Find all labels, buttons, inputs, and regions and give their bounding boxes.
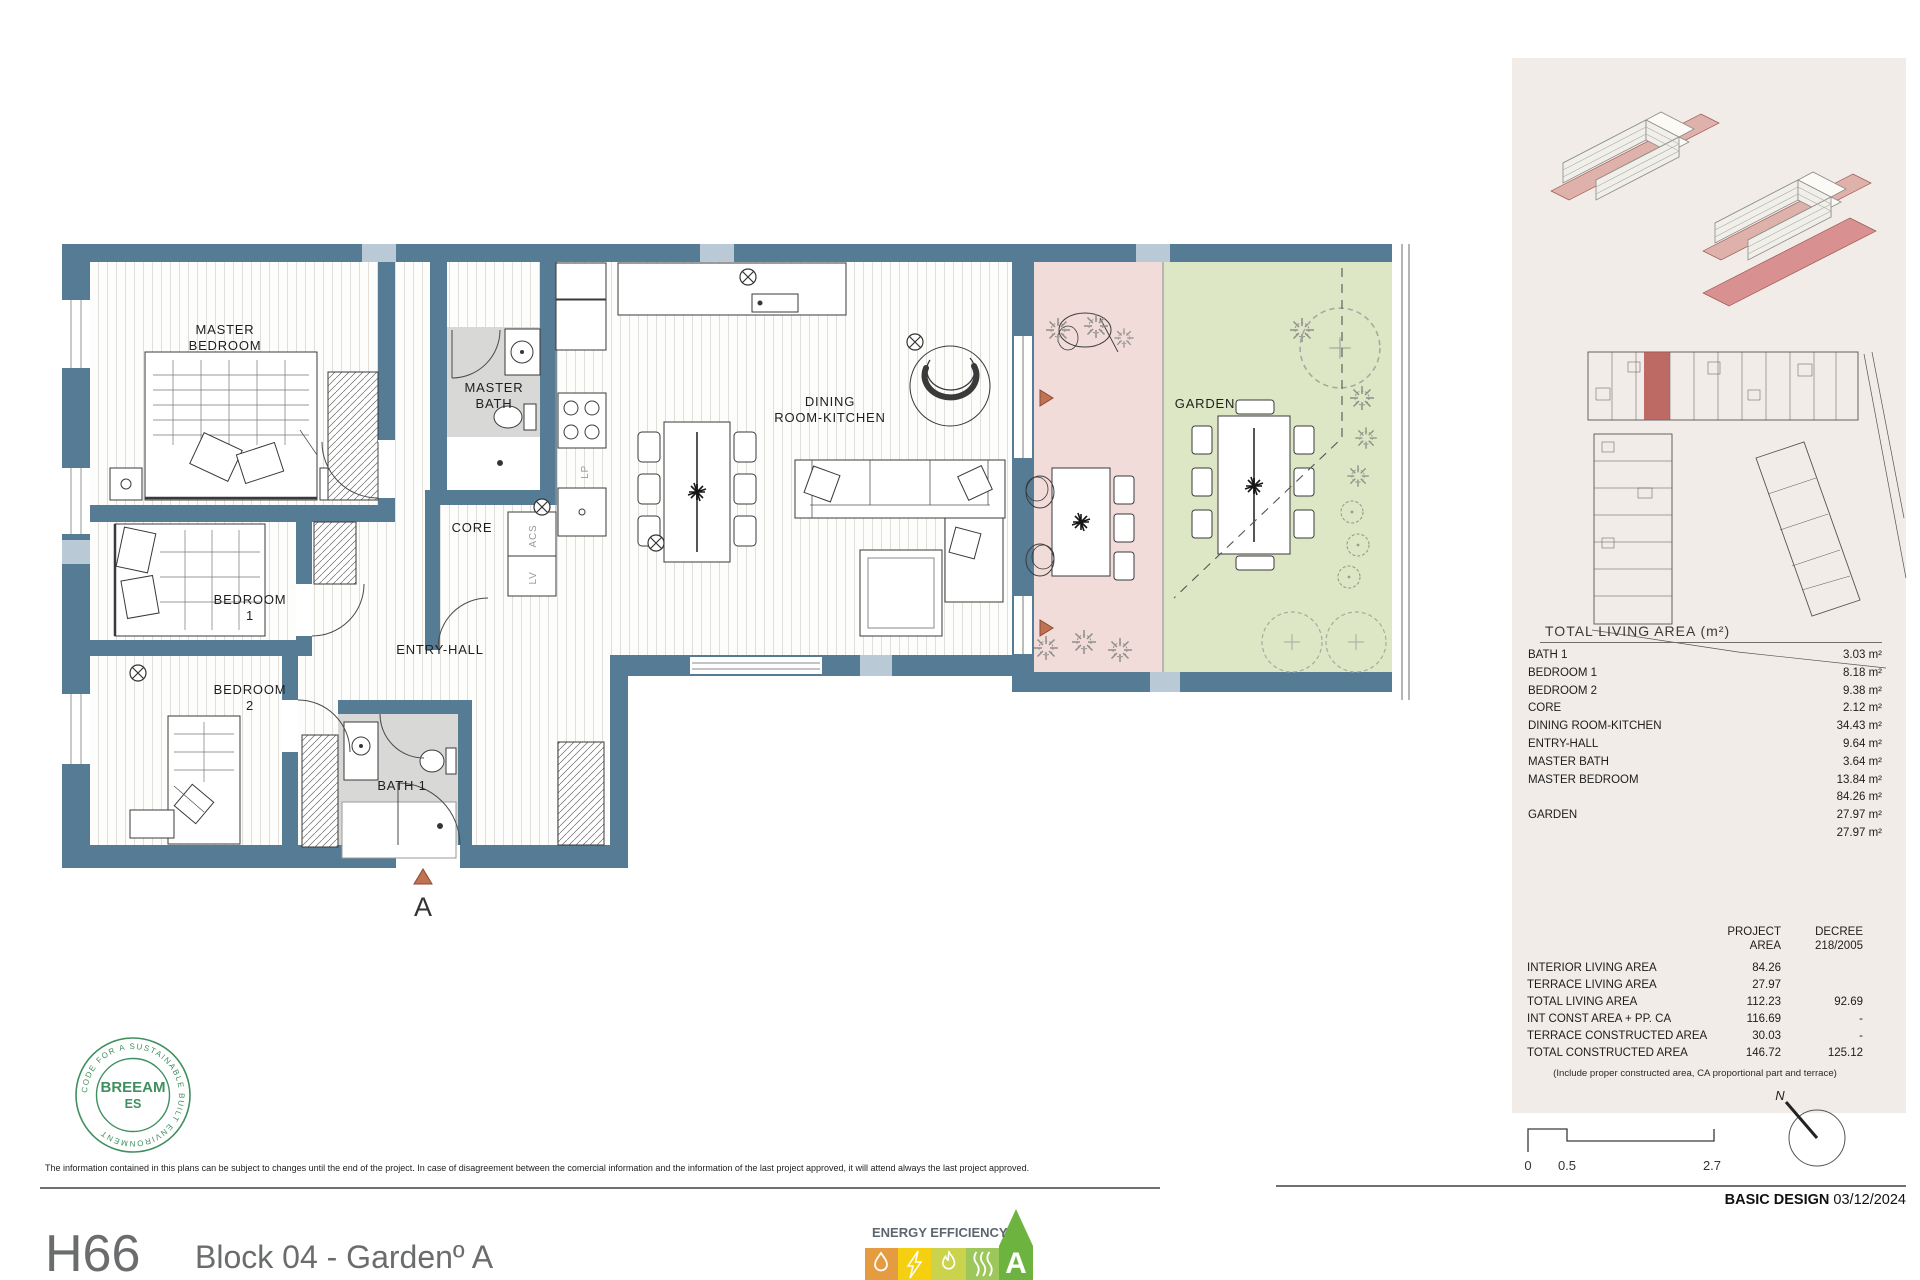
label-garden: GARDEN — [1175, 396, 1235, 411]
label-master-bath: MASTER — [465, 380, 524, 395]
unit-code: H66 — [45, 1228, 140, 1280]
label-bedroom-1: BEDROOM — [214, 592, 287, 607]
energy-rating-letter: A — [1005, 1247, 1027, 1280]
bedroom1-bed — [115, 524, 265, 636]
area-row: MASTER BEDROOM13.84 m² — [1528, 774, 1882, 792]
label-bedroom-2: BEDROOM — [214, 682, 287, 697]
label-acs: ACS — [528, 525, 539, 548]
summary-row: TERRACE CONSTRUCTED AREA30.03- — [1527, 1030, 1863, 1047]
disclaimer-text: The information contained in this plans … — [45, 1163, 1175, 1173]
area-row-subtotal: 84.26 m² — [1528, 791, 1882, 809]
area-row: BEDROOM 18.18 m² — [1528, 667, 1882, 685]
svg-text:1: 1 — [246, 608, 254, 623]
breeam-logo: CODE FOR A SUSTAINABLE BUILT ENVIRONMENT… — [76, 1038, 190, 1152]
summary-table: PROJECT AREA DECREE 218/2005 INTERIOR LI… — [1527, 926, 1863, 1079]
summary-table-header: PROJECT AREA DECREE 218/2005 — [1527, 926, 1863, 954]
area-row: GARDEN27.97 m² — [1528, 809, 1882, 827]
scale-bar: 0 0.5 2.7 — [1524, 1129, 1721, 1173]
area-row: MASTER BATH3.64 m² — [1528, 756, 1882, 774]
label-lp: LP — [580, 465, 591, 479]
breeam-region: ES — [125, 1097, 142, 1111]
area-row: ENTRY-HALL9.64 m² — [1528, 738, 1882, 756]
area-row: BATH 13.03 m² — [1528, 649, 1882, 667]
area-row-subtotal: 27.97 m² — [1528, 827, 1882, 845]
section-marker-triangle — [414, 869, 432, 884]
summary-row: INT CONST AREA + PP. CA116.69- — [1527, 1013, 1863, 1030]
svg-text:ROOM-KITCHEN: ROOM-KITCHEN — [774, 410, 885, 425]
summary-footnote: (Include proper constructed area, CA pro… — [1527, 1068, 1863, 1079]
label-entry-hall: ENTRY-HALL — [396, 642, 483, 657]
label-core: CORE — [452, 520, 493, 535]
floor-plan-canvas: MASTER BEDROOM MASTER BATH DINING ROOM-K… — [0, 0, 1920, 1280]
site-unit-highlight — [1644, 352, 1670, 420]
block-title: Block 04 - Gardenº A — [195, 1241, 493, 1273]
area-table-rule — [1540, 642, 1882, 643]
coffee-table — [860, 550, 942, 636]
scale-tick-05: 0.5 — [1558, 1158, 1576, 1173]
floor-plan-sheet: MASTER BEDROOM MASTER BATH DINING ROOM-K… — [0, 0, 1920, 1280]
svg-text:BATH: BATH — [476, 396, 513, 411]
master-bed — [110, 352, 354, 500]
energy-efficiency-badge: A — [865, 1209, 1033, 1280]
label-lv: LV — [528, 571, 539, 584]
label-dining-room-kitchen: DINING — [805, 394, 855, 409]
scale-tick-27: 2.7 — [1703, 1158, 1721, 1173]
north-label: N — [1775, 1088, 1785, 1103]
breeam-name: BREEAM — [100, 1079, 165, 1096]
summary-row: TOTAL LIVING AREA112.2392.69 — [1527, 996, 1863, 1013]
area-table-title: TOTAL LIVING AREA (m²) — [1545, 623, 1730, 639]
area-row: BEDROOM 29.38 m² — [1528, 685, 1882, 703]
summary-row: INTERIOR LIVING AREA84.26 — [1527, 962, 1863, 979]
summary-row: TERRACE LIVING AREA27.97 — [1527, 979, 1863, 996]
scale-tick-0: 0 — [1524, 1158, 1531, 1173]
terrace-floor — [1034, 262, 1163, 672]
design-stage-stamp: BASIC DESIGN 03/12/2024 — [1725, 1192, 1906, 1208]
label-master-bedroom: MASTER — [196, 322, 255, 337]
label-section-a: A — [414, 892, 432, 922]
kitchen-island — [618, 263, 846, 315]
svg-text:BEDROOM: BEDROOM — [189, 338, 262, 353]
label-bath-1: BATH 1 — [377, 778, 426, 793]
area-row: CORE2.12 m² — [1528, 702, 1882, 720]
area-row: DINING ROOM-KITCHEN34.43 m² — [1528, 720, 1882, 738]
svg-text:2: 2 — [246, 698, 254, 713]
energy-efficiency-title: ENERGY EFFICIENCY — [872, 1225, 1008, 1240]
area-table: BATH 13.03 m² BEDROOM 18.18 m² BEDROOM 2… — [1528, 649, 1882, 845]
summary-row: TOTAL CONSTRUCTED AREA146.72125.12 — [1527, 1047, 1863, 1064]
